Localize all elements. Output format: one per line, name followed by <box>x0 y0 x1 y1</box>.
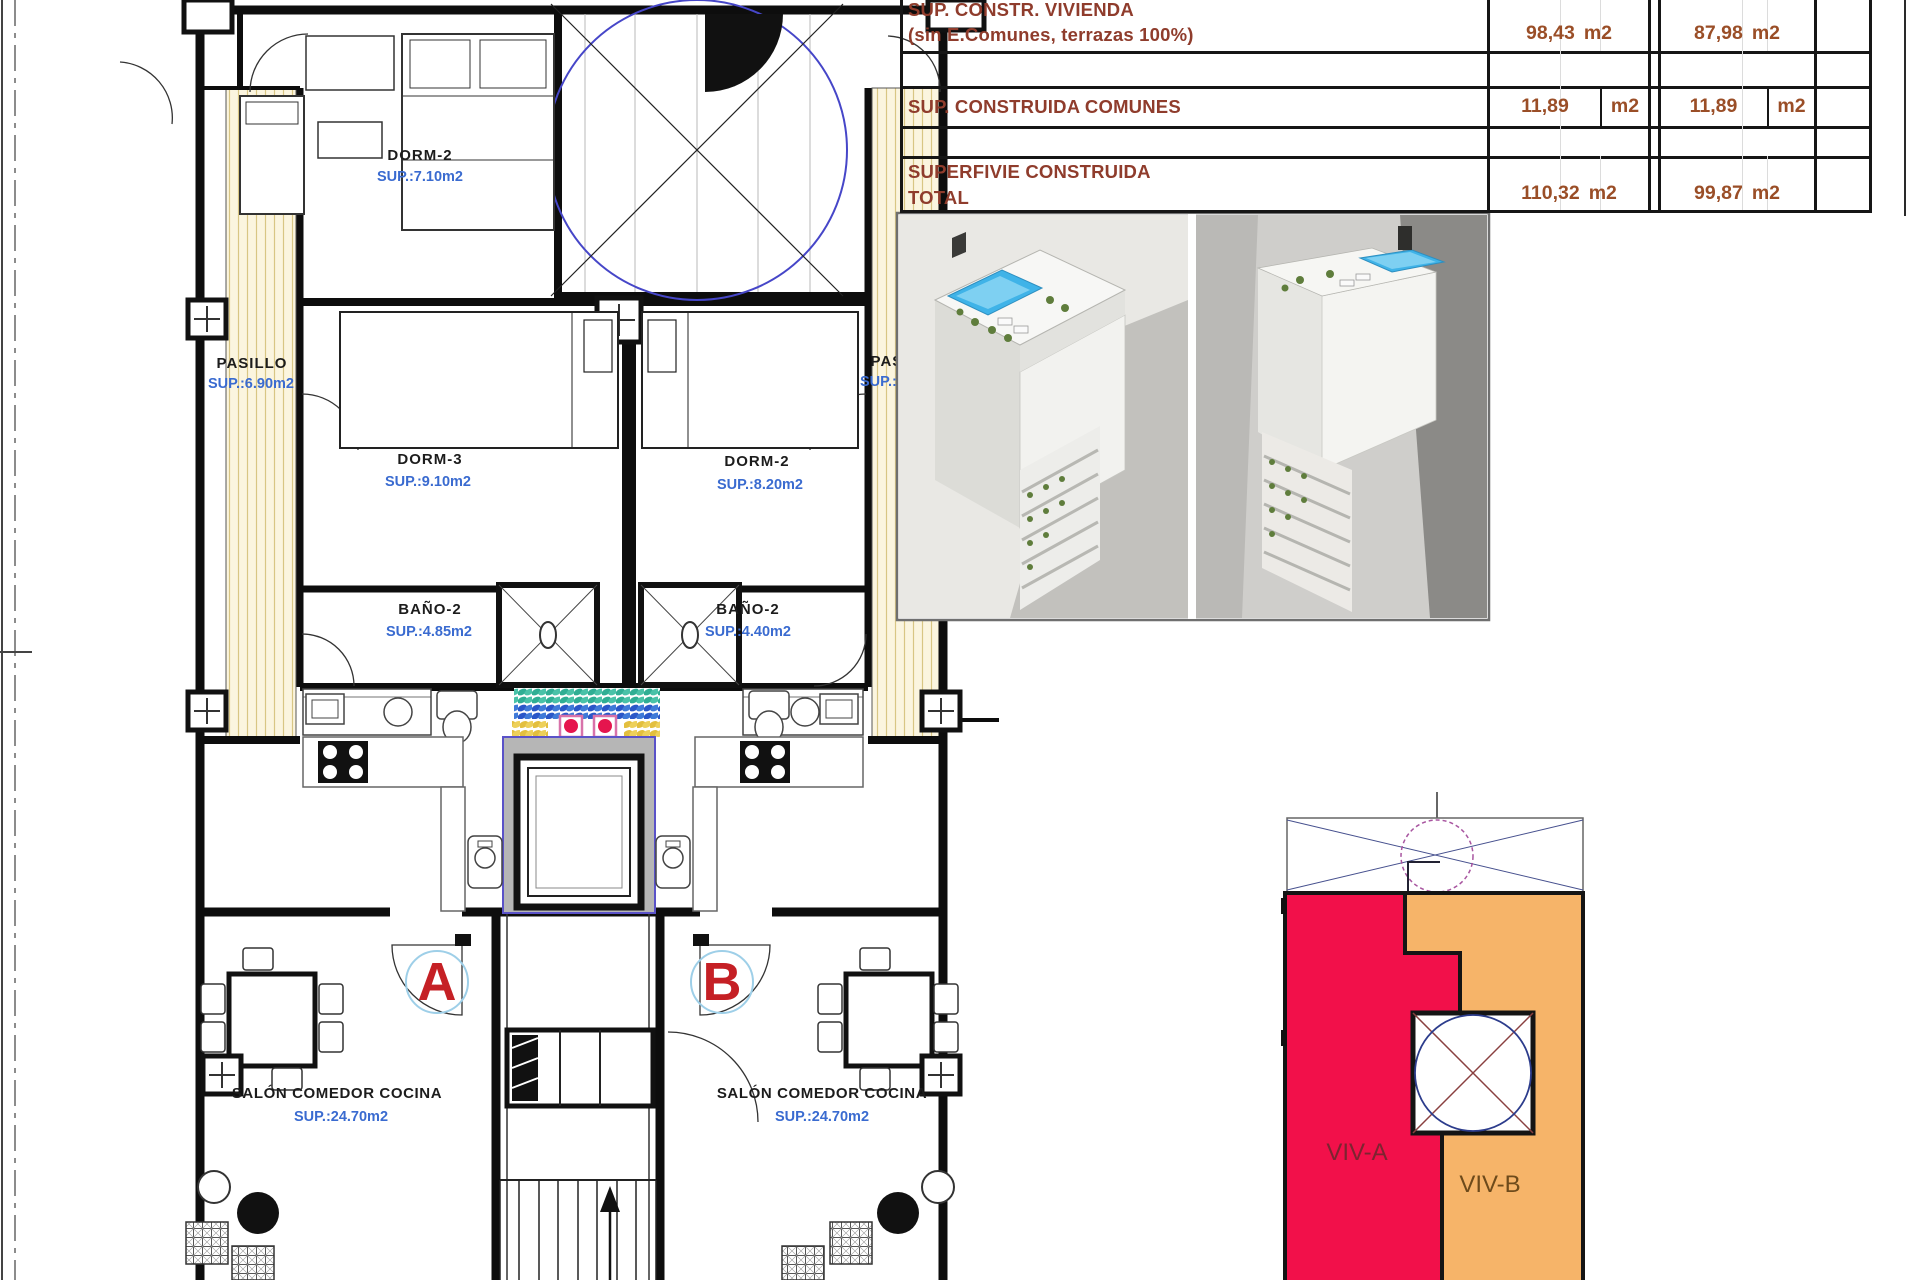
room-area: SUP.:4.85m2 <box>386 624 472 640</box>
row3-sublabel: TOTAL <box>908 186 969 210</box>
site-diagram: VIV-A VIV-B <box>1281 792 1583 1280</box>
circle-core <box>547 0 847 342</box>
table-rule <box>900 86 1872 89</box>
room-label: BAÑO-2 <box>716 600 780 618</box>
page-edge-rule <box>1904 0 1906 216</box>
room-label: SALÓN COMEDOR COCINA <box>232 1084 442 1102</box>
core-stairs <box>500 1030 656 1280</box>
render-panel <box>897 213 1489 620</box>
architectural-plan-sheet: A B <box>0 0 1920 1280</box>
room-area: SUP.:7.10m2 <box>377 169 463 185</box>
entrance-doors: A B <box>392 934 770 1015</box>
sink-left <box>468 836 502 888</box>
room-label: DORM-3 <box>397 451 462 468</box>
sink-right <box>656 836 690 888</box>
dorm2-top-furniture <box>240 34 554 230</box>
row3-label: SUPERFIVIE CONSTRUIDA <box>908 160 1151 184</box>
room-area: SUP.:8.20m2 <box>717 477 803 493</box>
row3-viv-a-value: 110,32m2 <box>1490 182 1648 205</box>
table-rule <box>1814 0 1817 213</box>
showers <box>499 585 739 685</box>
row2-label: SUP. CONSTRUIDA COMUNES <box>908 95 1181 119</box>
room-area: SUP.:24.70m2 <box>294 1109 388 1125</box>
room-area: SUP.:4.40m2 <box>705 624 791 640</box>
chimney <box>1398 226 1412 250</box>
room-label: SALÓN COMEDOR COCINA <box>717 1084 927 1102</box>
table-rule <box>1648 0 1651 213</box>
elevator <box>503 737 655 913</box>
render-divider <box>1188 214 1196 619</box>
room-label: PASILLO <box>217 355 288 372</box>
table-rule <box>1869 0 1872 213</box>
floor-plan: A B <box>0 0 999 1280</box>
row3-viv-b-value: 99,87m2 <box>1660 182 1814 205</box>
room-label: DORM-2 <box>724 453 789 470</box>
unit-b-label: VIV-B <box>1459 1171 1520 1198</box>
room-area: SUP.:6.90m2 <box>208 376 294 392</box>
room-area: SUP.:9.10m2 <box>385 474 471 490</box>
mosaic-tiles <box>512 688 660 738</box>
room-label: DORM-2 <box>387 147 452 164</box>
row1-sublabel: (sin E.Comunes, terrazas 100%) <box>908 23 1194 47</box>
render-left <box>899 215 1188 618</box>
row1-viv-b-value: 87,98m2 <box>1660 22 1814 45</box>
room-area: SUP.:24.70m2 <box>775 1109 869 1125</box>
table-rule <box>900 126 1872 129</box>
table-rule <box>900 51 1872 54</box>
living-furniture <box>186 1171 954 1280</box>
beds <box>340 312 858 448</box>
row2-viv-a-unit: m2 <box>1602 95 1648 118</box>
table-rule <box>900 0 903 213</box>
row2-viv-b-value: 11,89 <box>1660 95 1767 118</box>
unit-b-marker: B <box>703 952 742 1012</box>
render-right <box>1196 215 1487 618</box>
table-rule <box>900 210 1872 213</box>
row2-viv-b-unit: m2 <box>1769 95 1814 118</box>
unit-a-marker: A <box>418 952 457 1012</box>
door-fan <box>705 14 783 92</box>
row1-label: SUP. CONSTR. VIVIENDA <box>908 0 1134 22</box>
corner-box-left <box>184 0 232 32</box>
row1-viv-a-value: 98,43m2 <box>1490 22 1648 45</box>
room-label: BAÑO-2 <box>398 600 462 618</box>
row2-viv-a-value: 11,89 <box>1490 95 1600 118</box>
table-rule <box>900 156 1872 159</box>
unit-a-label: VIV-A <box>1326 1139 1387 1166</box>
